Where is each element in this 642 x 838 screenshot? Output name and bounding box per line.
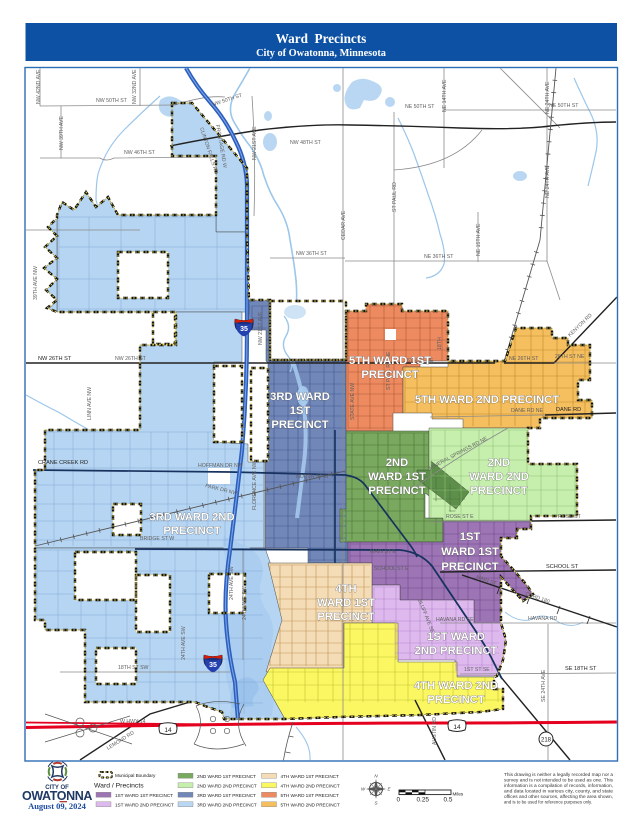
svg-text:35: 35: [209, 662, 217, 669]
svg-text:PRECINCT: PRECINCT: [427, 694, 484, 706]
svg-text:HAVANA RD: HAVANA RD: [528, 616, 557, 622]
svg-text:ROSE ST: ROSE ST: [558, 514, 582, 520]
svg-text:ST PAUL RD: ST PAUL RD: [392, 182, 398, 212]
svg-text:PRECINCT: PRECINCT: [441, 561, 498, 573]
svg-text:Municipal Boundary: Municipal Boundary: [115, 773, 156, 778]
svg-text:1ST: 1ST: [460, 531, 481, 543]
svg-text:2ND: 2ND: [488, 457, 510, 469]
svg-text:39TH AVE NW: 39TH AVE NW: [33, 266, 39, 300]
svg-text:5TH WARD 2ND PRECINCT: 5TH WARD 2ND PRECINCT: [415, 394, 559, 406]
svg-text:1ST WARD 2ND PRECINCT: 1ST WARD 2ND PRECINCT: [115, 802, 174, 807]
svg-text:LINN AVE NW: LINN AVE NW: [87, 387, 93, 420]
svg-text:PRECINCT: PRECINCT: [163, 525, 220, 537]
svg-text:3RD WARD 2ND: 3RD WARD 2ND: [149, 512, 234, 524]
svg-text:NE 50TH ST: NE 50TH ST: [549, 103, 579, 109]
svg-text:1ST WARD 1ST PRECINCT: 1ST WARD 1ST PRECINCT: [115, 793, 173, 798]
svg-text:Ward / Precincts: Ward / Precincts: [94, 783, 144, 790]
svg-text:4TH WARD 1ST PRECINCT: 4TH WARD 1ST PRECINCT: [281, 774, 340, 779]
svg-text:14: 14: [453, 724, 461, 731]
svg-text:26TH ST NE: 26TH ST NE: [555, 354, 585, 360]
svg-text:2ND: 2ND: [386, 457, 408, 469]
svg-text:5TH WARD 2ND PRECINCT: 5TH WARD 2ND PRECINCT: [281, 802, 340, 807]
svg-text:SE 18TH ST: SE 18TH ST: [565, 666, 597, 672]
svg-text:survey and is not intended to: survey and is not intended to be used as…: [504, 778, 614, 783]
svg-text:2ND WARD 2ND PRECINCT: 2ND WARD 2ND PRECINCT: [197, 783, 257, 788]
svg-text:4TH WARD 2ND PRECINCT: 4TH WARD 2ND PRECINCT: [281, 783, 340, 788]
svg-text:1ST ST SE: 1ST ST SE: [464, 667, 490, 673]
svg-text:4TH WARD 2ND: 4TH WARD 2ND: [414, 680, 498, 692]
svg-text:information is a compilation o: information is a compilation of records,…: [504, 783, 613, 788]
svg-text:0.5: 0.5: [444, 797, 453, 804]
svg-text:offices and other sources, aff: offices and other sources, affecting the…: [504, 794, 613, 799]
svg-text:City of Owatonna, Minnesota: City of Owatonna, Minnesota: [256, 48, 386, 59]
svg-text:This drawing is neither a lega: This drawing is neither a legally record…: [504, 772, 614, 777]
svg-text:NW 48TH ST: NW 48TH ST: [290, 140, 322, 146]
svg-text:2ND PRECINCT: 2ND PRECINCT: [415, 645, 498, 657]
svg-text:18TH ST SW: 18TH ST SW: [118, 665, 149, 671]
svg-text:NW 46TH ST: NW 46TH ST: [124, 150, 156, 156]
svg-text:PRECINCT: PRECINCT: [317, 611, 374, 623]
svg-text:STATE AVE NW: STATE AVE NW: [350, 383, 356, 420]
svg-text:NE 14TH AVE: NE 14TH AVE: [442, 79, 448, 112]
svg-text:DANE RD NE: DANE RD NE: [511, 408, 544, 414]
svg-text:4TH: 4TH: [335, 583, 356, 595]
svg-text:HAVANA RD SE: HAVANA RD SE: [436, 617, 474, 623]
svg-text:NE 24TH AVE: NE 24TH AVE: [545, 81, 551, 114]
svg-text:1ST WARD: 1ST WARD: [427, 631, 485, 643]
svg-text:NW 26TH ST: NW 26TH ST: [38, 356, 72, 362]
svg-text:SCHOOL ST E: SCHOOL ST E: [374, 566, 409, 572]
svg-text:DANE RD: DANE RD: [556, 407, 581, 413]
svg-text:and is to be used for referenc: and is to be used for reference purposes…: [504, 800, 592, 805]
svg-text:35: 35: [240, 326, 248, 333]
svg-text:SE 24TH AVE: SE 24TH AVE: [541, 669, 547, 702]
svg-text:NW 21ST AVE: NW 21ST AVE: [252, 126, 258, 160]
svg-text:NW 36TH ST: NW 36TH ST: [296, 251, 328, 257]
svg-text:ROSE ST E: ROSE ST E: [446, 514, 474, 520]
svg-text:S: S: [374, 801, 377, 806]
svg-text:PRECINCT: PRECINCT: [470, 485, 527, 497]
svg-text:Miles: Miles: [453, 792, 464, 797]
svg-text:NORTH ST W: NORTH ST W: [296, 474, 329, 480]
svg-text:3RD WARD 2ND PRECINCT: 3RD WARD 2ND PRECINCT: [197, 802, 257, 807]
svg-text:and data located in various ci: and data located in various city, county…: [504, 789, 614, 794]
svg-text:W HWY 14: W HWY 14: [120, 719, 146, 725]
svg-text:NW 39TH AVE: NW 39TH AVE: [59, 116, 65, 150]
svg-text:NW 26TH ST: NW 26TH ST: [115, 356, 147, 362]
svg-text:August 09, 2024: August 09, 2024: [28, 801, 87, 811]
svg-text:WARD 2ND: WARD 2ND: [469, 471, 529, 483]
svg-text:0.25: 0.25: [417, 797, 430, 804]
svg-text:0: 0: [397, 797, 401, 804]
svg-text:218: 218: [541, 738, 552, 744]
svg-text:NE 36TH ST: NE 36TH ST: [424, 254, 454, 260]
svg-text:HOFFMAN DR NW: HOFFMAN DR NW: [198, 463, 243, 469]
svg-text:MAIN ST E: MAIN ST E: [370, 549, 396, 555]
svg-text:WARD 1ST: WARD 1ST: [317, 597, 375, 609]
svg-text:18TH: 18TH: [437, 337, 443, 350]
svg-text:24TH AVE SW: 24TH AVE SW: [242, 586, 248, 620]
svg-text:24TH AVE SW: 24TH AVE SW: [181, 626, 187, 660]
svg-text:NW 32ND AVE: NW 32ND AVE: [132, 69, 138, 104]
svg-text:PRECINCT: PRECINCT: [361, 369, 418, 381]
svg-text:5TH WARD 1ST: 5TH WARD 1ST: [349, 355, 431, 367]
svg-text:NE 24TH AVE: NE 24TH AVE: [545, 165, 551, 198]
svg-text:PRECINCT: PRECINCT: [368, 485, 425, 497]
svg-text:PRECINCT: PRECINCT: [271, 419, 328, 431]
svg-text:14: 14: [164, 727, 172, 734]
svg-text:AUSTIN RD: AUSTIN RD: [432, 717, 438, 745]
svg-text:NW 50TH ST: NW 50TH ST: [96, 98, 128, 104]
svg-text:5TH WARD 1ST PRECINCT: 5TH WARD 1ST PRECINCT: [281, 793, 340, 798]
svg-text:CEDAR AVE: CEDAR AVE: [341, 210, 347, 240]
svg-text:NE 15TH AVE: NE 15TH AVE: [476, 223, 482, 256]
svg-text:NE 26TH ST: NE 26TH ST: [509, 356, 539, 362]
svg-text:NE 50TH ST: NE 50TH ST: [405, 104, 435, 110]
svg-text:CRANE CREEK RD: CRANE CREEK RD: [38, 460, 88, 466]
svg-text:3RD WARD 1ST PRECINCT: 3RD WARD 1ST PRECINCT: [197, 793, 256, 798]
svg-text:1ST: 1ST: [290, 405, 311, 417]
svg-text:NW 21ST AVE: NW 21ST AVE: [258, 311, 264, 345]
svg-text:3RD WARD: 3RD WARD: [270, 391, 330, 403]
svg-text:SCHOOL ST: SCHOOL ST: [546, 564, 579, 570]
svg-text:WARD 1ST: WARD 1ST: [368, 471, 426, 483]
svg-text:NW 42ND AVE: NW 42ND AVE: [36, 69, 42, 104]
svg-text:2ND WARD 1ST PRECINCT: 2ND WARD 1ST PRECINCT: [197, 774, 256, 779]
svg-text:Ward Precincts: Ward Precincts: [276, 31, 367, 46]
svg-text:24TH AVE SW: 24TH AVE SW: [229, 566, 235, 600]
svg-text:FLORENCE AVE NW: FLORENCE AVE NW: [252, 460, 258, 510]
svg-text:WARD 1ST: WARD 1ST: [441, 546, 499, 558]
